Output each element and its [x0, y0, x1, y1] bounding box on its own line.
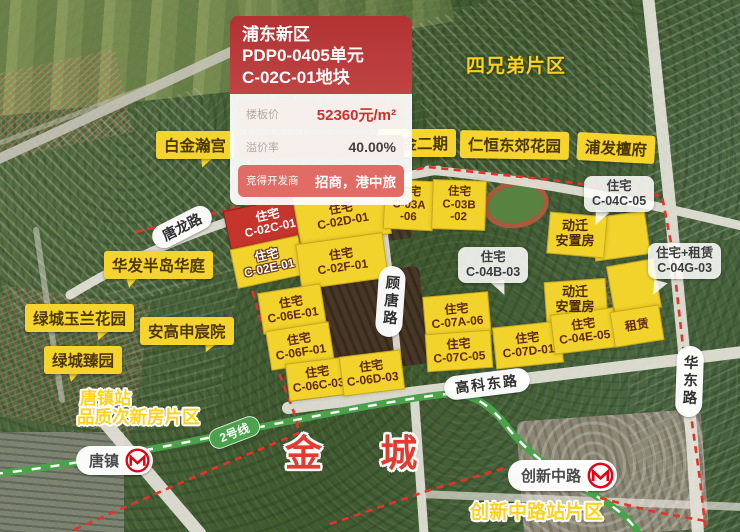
label-text: 绿城臻园	[52, 353, 114, 370]
card-title-line: C-02C-01地块	[242, 67, 400, 88]
card-title-line: 浦东新区	[242, 24, 400, 45]
label-renheng-dongjiao: 仁恒东郊花园	[460, 130, 569, 160]
parcel-code: C-02F-01	[317, 257, 369, 277]
card-header: 浦东新区 PDP0-0405单元 C-02C-01地块	[230, 16, 412, 94]
parcel-code: C-07D-01	[502, 342, 555, 361]
label-text: 绿城玉兰花园	[33, 311, 126, 328]
resettlement-line: 安置房	[546, 300, 604, 315]
parcel-C-03B-02: 住宅 C-03B -02	[431, 179, 487, 231]
shanghai-metro-icon	[587, 462, 614, 489]
metric-row-floor-price: 楼板价 52360元/m²	[238, 100, 404, 129]
label-lvcheng-zhenyuan: 绿城臻园	[44, 346, 122, 374]
resettlement-line: 动迁	[546, 285, 604, 300]
label-text: 白金瀚宫	[164, 138, 226, 155]
parcel-code: C-07A-06	[431, 314, 484, 332]
label-angao-shenchenyuan: 安高申宸院	[140, 317, 234, 345]
label-lvcheng-yulan: 绿城玉兰花园	[25, 304, 134, 332]
area-text-chuangxin-block: 创新中路站片区	[470, 497, 603, 524]
parcel-C-04E-05: 住宅 C-04E-05	[550, 307, 618, 355]
area-text-jincheng: 金 城	[285, 423, 441, 477]
bubble-line: 住宅	[592, 179, 646, 194]
parcel-code: C-07C-05	[433, 349, 486, 366]
road-name: 顾唐路	[380, 274, 400, 327]
road-label-gutang: 顾唐路	[375, 265, 407, 337]
station-name: 唐镇	[89, 450, 119, 471]
card-body: 楼板价 52360元/m² 溢价率 40.00% 竞得开发商 招商，港中旅	[230, 94, 412, 205]
road-name: 华东路	[680, 355, 698, 408]
developer-row: 竞得开发商 招商，港中旅	[238, 165, 404, 197]
bubble-line: C-04B-03	[466, 265, 520, 280]
parcel-code: C-06D-03	[346, 370, 399, 390]
area-text: 四兄弟片区	[466, 56, 566, 77]
road-name: 高科东路	[454, 372, 519, 396]
parcel-C-06D-03: 住宅 C-06D-03	[339, 349, 405, 396]
map-canvas[interactable]: 住宅 C-02C-01 住宅 C-02D-01 住宅 C-02E-01 住宅 C…	[0, 0, 740, 532]
bubble-C-04G-03: 住宅+租赁 C-04G-03	[648, 243, 721, 279]
metric-label: 溢价率	[246, 139, 279, 155]
metric-value: 40.00%	[349, 139, 396, 155]
parcel-use: 住宅	[448, 185, 471, 199]
parcel-code: C-04E-05	[559, 328, 612, 348]
card-title-line: PDP0-0405单元	[242, 45, 400, 66]
area-text: 品质次新房片区	[77, 407, 200, 427]
metric-label: 楼板价	[246, 106, 279, 122]
resettlement-line: 安置房	[546, 234, 604, 249]
area-text-sixiongdi: 四兄弟片区	[466, 51, 566, 78]
developer-label: 竞得开发商	[246, 173, 299, 188]
parcel-use: 租赁	[624, 317, 650, 334]
bubble-line: 住宅+租赁	[656, 246, 713, 261]
parcel-code: C-06C-03	[292, 376, 345, 396]
parcel-code: C-02E-01	[243, 257, 296, 281]
resettlement-label: 动迁 安置房	[546, 285, 604, 314]
parcel-code: -06	[400, 211, 417, 225]
label-huafa-bandao: 华发半岛华庭	[104, 251, 213, 279]
label-text: 华发半岛华庭	[112, 258, 205, 275]
label-baijinhangong: 白金瀚宫	[156, 131, 234, 159]
bubble-C-04C-05: 住宅 C-04C-05	[584, 176, 654, 212]
bubble-line: C-04C-05	[592, 194, 646, 209]
label-text: 浦发檀府	[585, 139, 648, 159]
parcel-rental: 租赁	[609, 304, 664, 347]
road-label-huadong: 华东路	[675, 346, 704, 417]
label-text: 仁恒东郊花园	[468, 137, 561, 156]
area-text-tangzhen-subtitle: 品质次新房片区	[77, 404, 200, 429]
bubble-C-04B-03: 住宅 C-04B-03	[458, 247, 528, 283]
label-text: 安高申宸院	[148, 324, 226, 341]
station-chuangxin: 创新中路	[508, 460, 617, 491]
parcel-C-07C-05: 住宅 C-07C-05	[425, 330, 493, 373]
parcel-code: C-02D-01	[316, 210, 370, 232]
parcel-info-card: 浦东新区 PDP0-0405单元 C-02C-01地块 楼板价 52360元/m…	[230, 16, 412, 205]
area-text: 金 城	[285, 433, 441, 474]
shanghai-metro-icon	[125, 448, 150, 473]
metric-value: 52360元/m²	[317, 104, 396, 125]
area-text: 创新中路站片区	[470, 502, 603, 523]
station-tangzhen: 唐镇	[76, 446, 153, 475]
parcel-code: -02	[450, 211, 467, 224]
bubble-line: C-04G-03	[656, 261, 713, 276]
label-pufa-tanfu: 浦发檀府	[576, 132, 655, 164]
parcel-code: C-03B	[442, 198, 476, 212]
developer-value: 招商，港中旅	[315, 171, 396, 191]
station-name: 创新中路	[521, 465, 581, 486]
bubble-line: 住宅	[466, 250, 520, 265]
metric-row-premium-rate: 溢价率 40.00%	[238, 135, 404, 159]
